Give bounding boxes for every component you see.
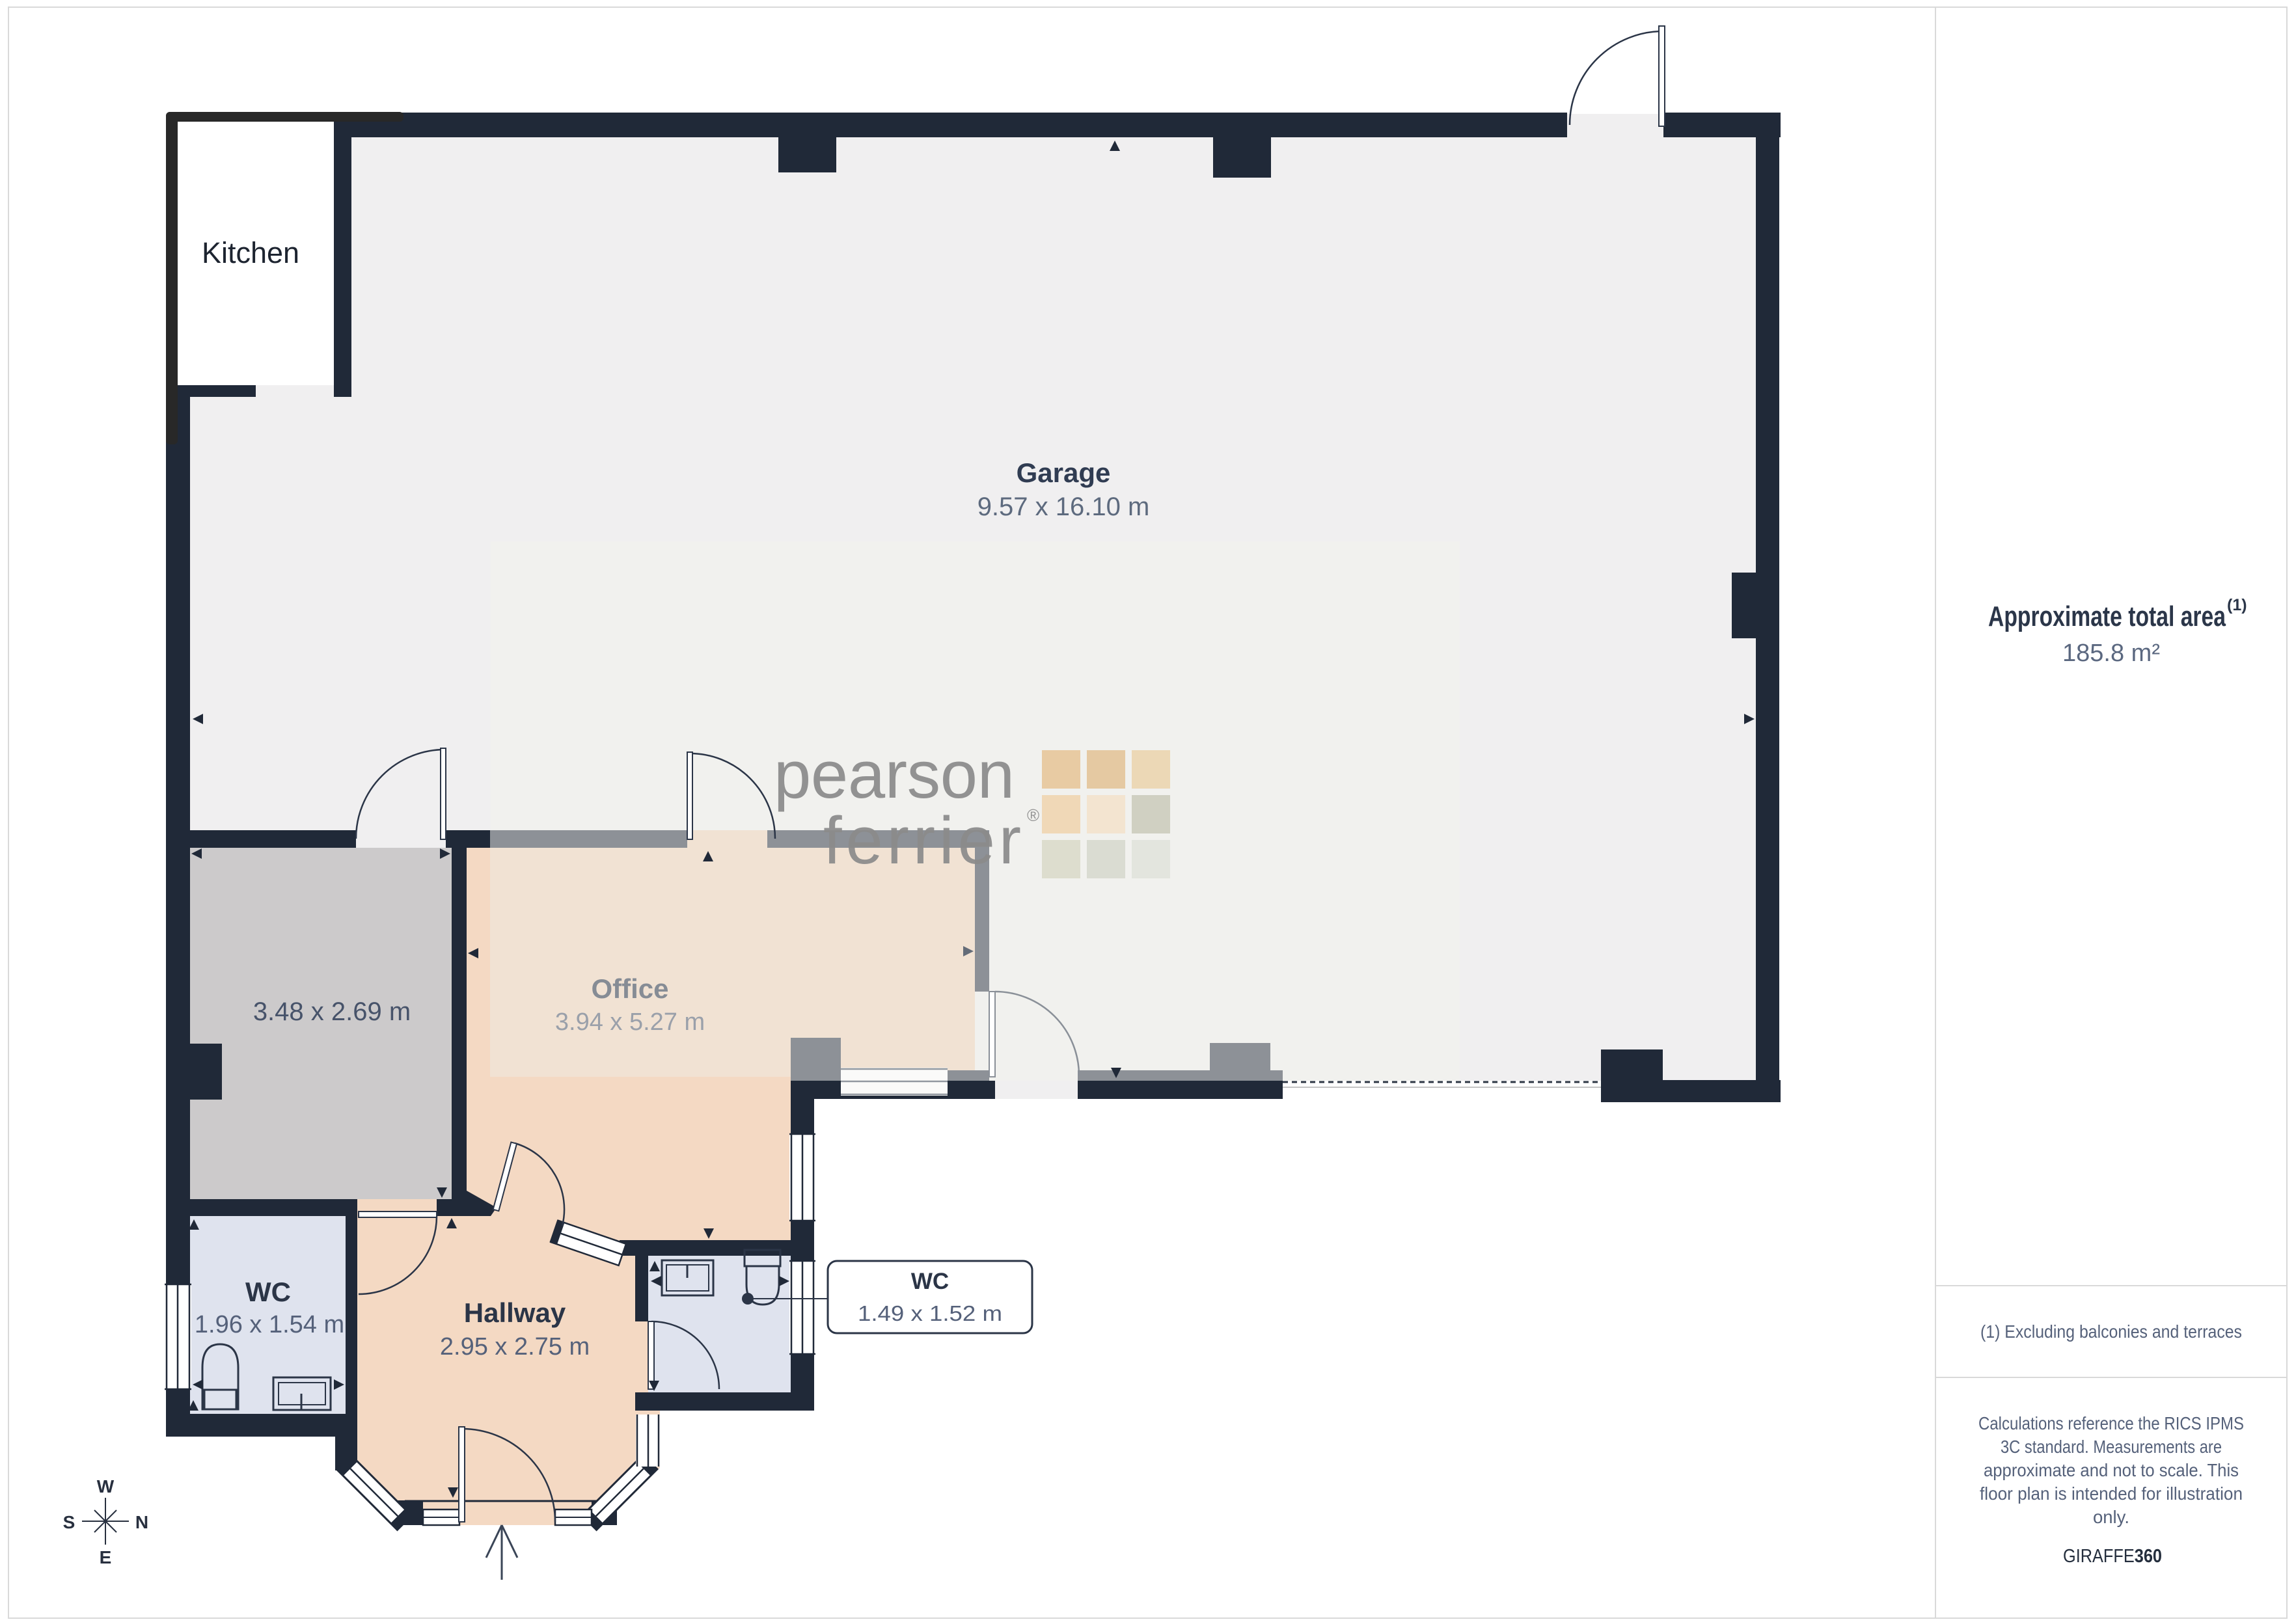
svg-text:Office: Office — [591, 973, 668, 1004]
svg-text:N: N — [135, 1512, 148, 1532]
svg-text:3C standard. Measurements are: 3C standard. Measurements are — [2001, 1437, 2222, 1457]
svg-text:floor plan is intended for ill: floor plan is intended for illustration — [1980, 1483, 2243, 1504]
svg-text:only.: only. — [2093, 1507, 2129, 1527]
svg-text:GIRAFFE360: GIRAFFE360 — [2063, 1546, 2162, 1567]
svg-text:1.96 x 1.54 m: 1.96 x 1.54 m — [195, 1311, 344, 1338]
svg-text:Approximate total area: Approximate total area — [1988, 601, 2226, 632]
svg-text:Kitchen: Kitchen — [202, 236, 299, 269]
svg-text:Calculations reference the RIC: Calculations reference the RICS IPMS — [1978, 1413, 2244, 1433]
svg-text:3.94 x 5.27 m: 3.94 x 5.27 m — [555, 1008, 705, 1036]
svg-text:®: ® — [1027, 805, 1039, 825]
svg-text:(1) Excluding balconies and te: (1) Excluding balconies and terraces — [1980, 1321, 2242, 1342]
svg-text:pearson: pearson — [774, 737, 1015, 812]
svg-text:W: W — [97, 1476, 115, 1496]
svg-text:Garage: Garage — [1017, 457, 1111, 488]
svg-text:2.95 x 2.75 m: 2.95 x 2.75 m — [440, 1333, 590, 1360]
svg-text:1.49 x 1.52 m: 1.49 x 1.52 m — [858, 1301, 1002, 1325]
svg-text:WC: WC — [911, 1269, 949, 1294]
svg-text:S: S — [63, 1512, 75, 1532]
svg-text:9.57 x 16.10 m: 9.57 x 16.10 m — [977, 493, 1150, 521]
svg-text:approximate and not to scale.: approximate and not to scale. This — [1984, 1460, 2239, 1480]
svg-text:3.48 x 2.69 m: 3.48 x 2.69 m — [253, 997, 411, 1026]
svg-text:Hallway: Hallway — [464, 1297, 566, 1328]
svg-text:ferrier: ferrier — [823, 803, 1021, 878]
svg-text:(1): (1) — [2227, 596, 2247, 614]
svg-text:WC: WC — [245, 1277, 291, 1307]
svg-text:185.8 m²: 185.8 m² — [2062, 640, 2160, 667]
svg-text:E: E — [100, 1547, 112, 1567]
